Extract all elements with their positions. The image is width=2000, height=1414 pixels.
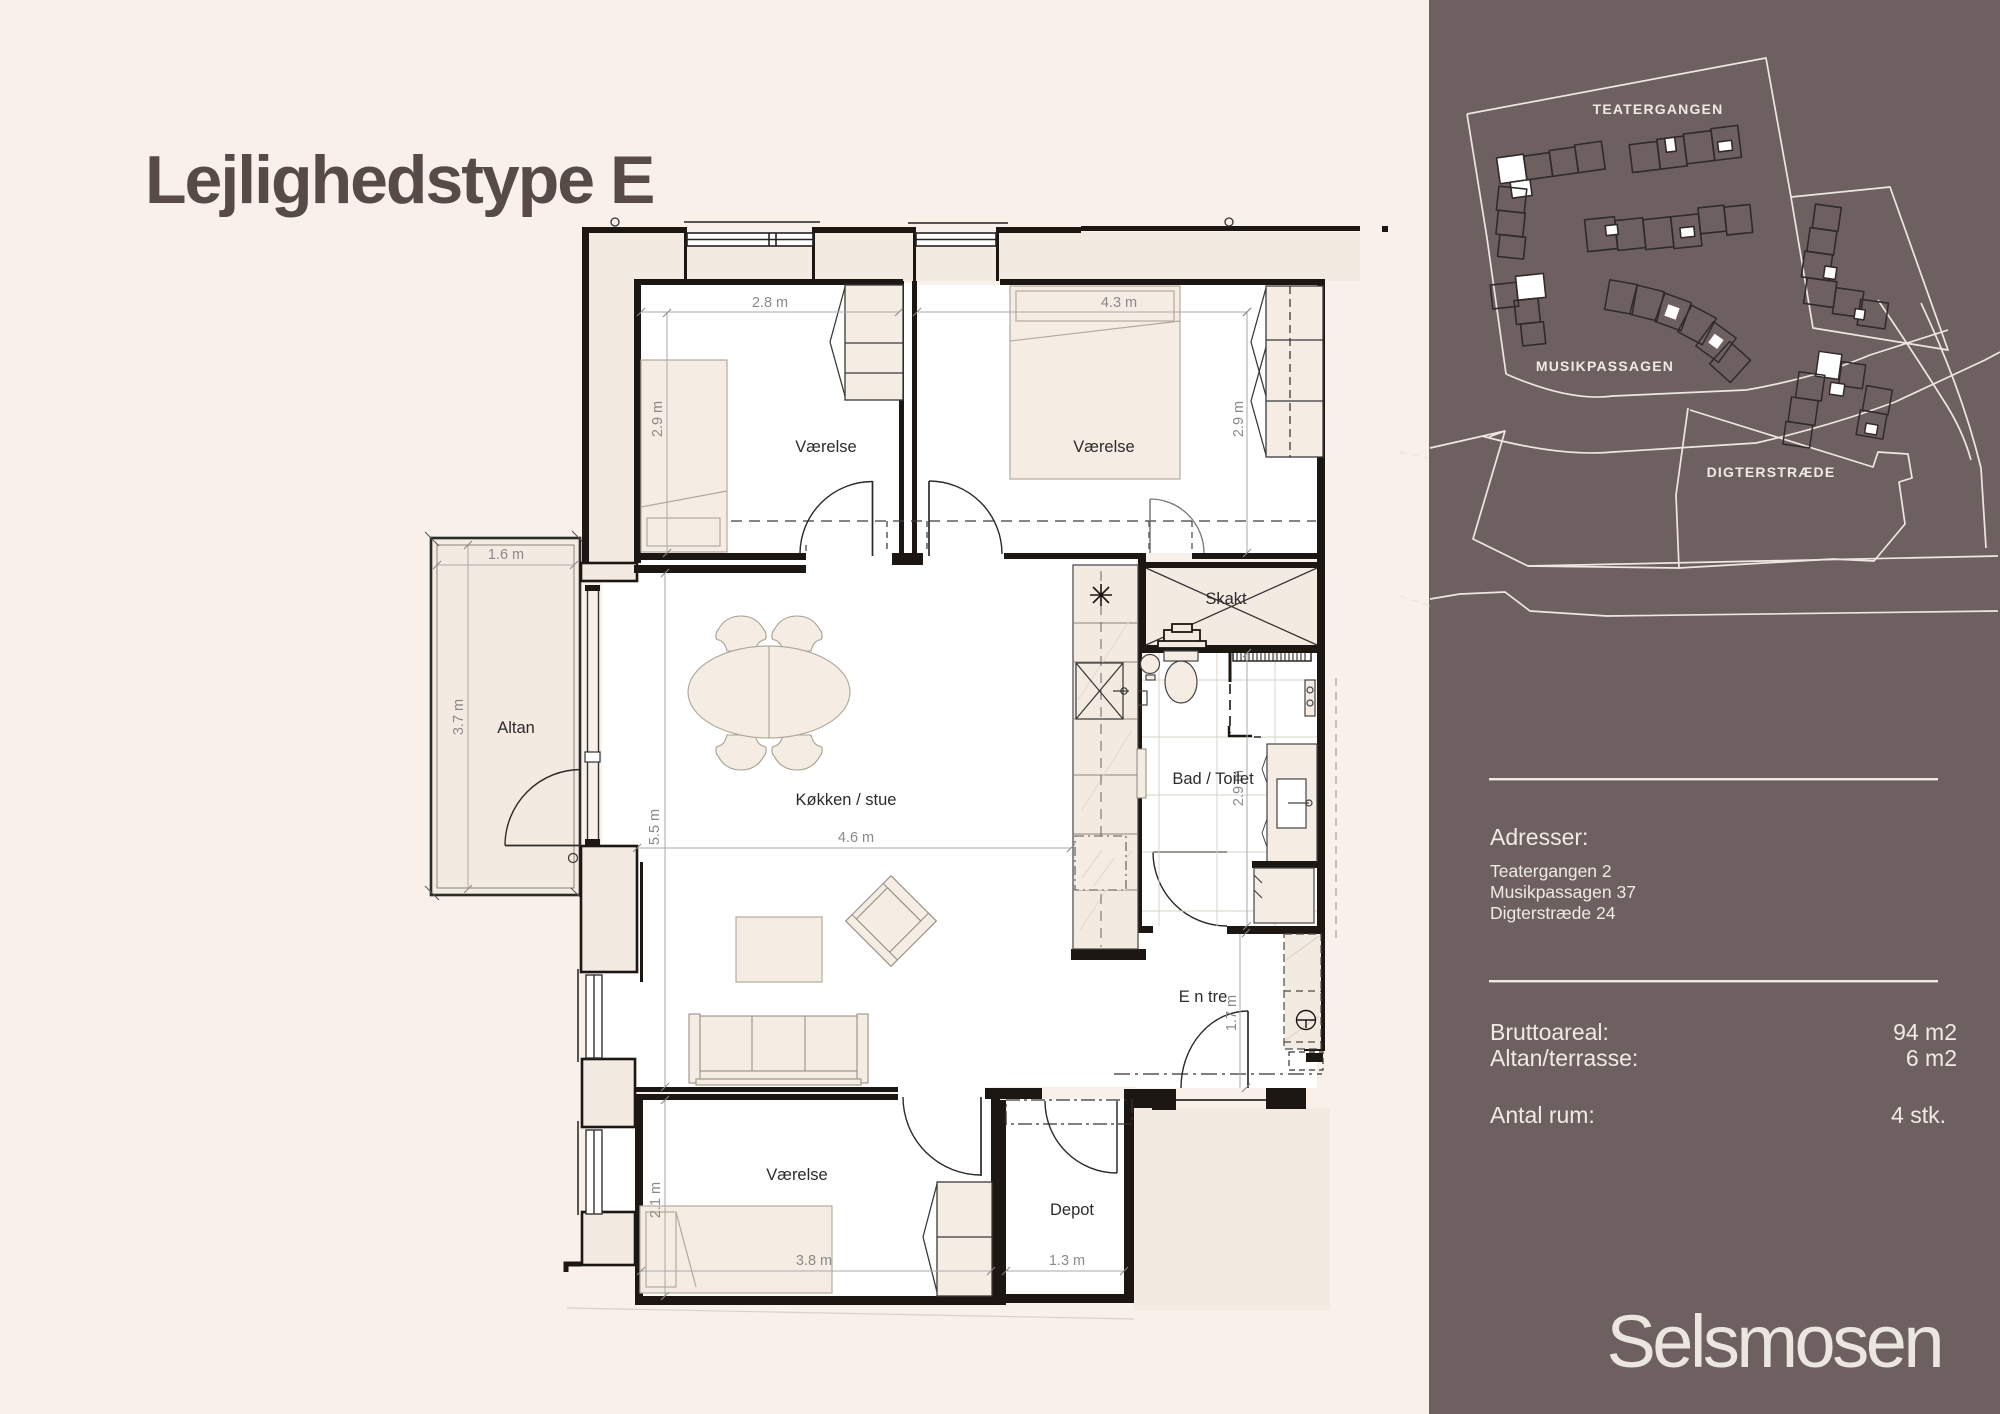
- svg-text:E n tre: E n tre: [1179, 988, 1228, 1006]
- svg-text:Digterstræde 24: Digterstræde 24: [1490, 903, 1616, 923]
- svg-text:Værelse: Værelse: [1073, 438, 1134, 456]
- svg-text:Teatergangen 2: Teatergangen 2: [1490, 861, 1612, 881]
- svg-text:Musikpassagen 37: Musikpassagen 37: [1490, 882, 1636, 902]
- svg-text:MUSIKPASSAGEN: MUSIKPASSAGEN: [1536, 358, 1674, 374]
- svg-text:Depot: Depot: [1050, 1201, 1094, 1219]
- svg-text:2.8 m: 2.8 m: [752, 295, 788, 311]
- svg-text:Selsmosen: Selsmosen: [1606, 1300, 1941, 1383]
- svg-text:2.1 m: 2.1 m: [648, 1182, 664, 1218]
- svg-text:2.9 m: 2.9 m: [650, 401, 666, 437]
- svg-text:1.6 m: 1.6 m: [488, 547, 524, 563]
- svg-text:3.7 m: 3.7 m: [451, 699, 467, 735]
- svg-text:Adresser:: Adresser:: [1490, 824, 1588, 850]
- svg-text:1.3 m: 1.3 m: [1049, 1253, 1085, 1269]
- svg-text:Bruttoareal:: Bruttoareal:: [1490, 1019, 1609, 1045]
- svg-text:4 stk.: 4 stk.: [1891, 1102, 1946, 1128]
- svg-text:TEATERGANGEN: TEATERGANGEN: [1593, 101, 1724, 117]
- svg-text:Køkken / stue: Køkken / stue: [796, 791, 897, 809]
- svg-text:Bad / Toilet: Bad / Toilet: [1172, 770, 1254, 788]
- svg-text:Værelse: Værelse: [795, 438, 856, 456]
- svg-text:Altan/terrasse:: Altan/terrasse:: [1490, 1045, 1638, 1071]
- svg-text:94 m2: 94 m2: [1893, 1019, 1957, 1045]
- svg-text:5.5 m: 5.5 m: [647, 809, 663, 845]
- svg-text:4.6 m: 4.6 m: [838, 830, 874, 846]
- svg-text:Lejlighedstype E: Lejlighedstype E: [145, 142, 653, 218]
- svg-text:DIGTERSTRÆDE: DIGTERSTRÆDE: [1707, 464, 1836, 480]
- svg-text:Skakt: Skakt: [1205, 590, 1247, 608]
- svg-text:4.3 m: 4.3 m: [1101, 295, 1137, 311]
- svg-text:3.8 m: 3.8 m: [796, 1253, 832, 1269]
- svg-text:Værelse: Værelse: [766, 1166, 827, 1184]
- svg-text:2.9 m: 2.9 m: [1231, 401, 1247, 437]
- svg-text:Altan: Altan: [497, 719, 535, 737]
- svg-text:Antal rum:: Antal rum:: [1490, 1102, 1595, 1128]
- svg-text:6 m2: 6 m2: [1906, 1045, 1957, 1071]
